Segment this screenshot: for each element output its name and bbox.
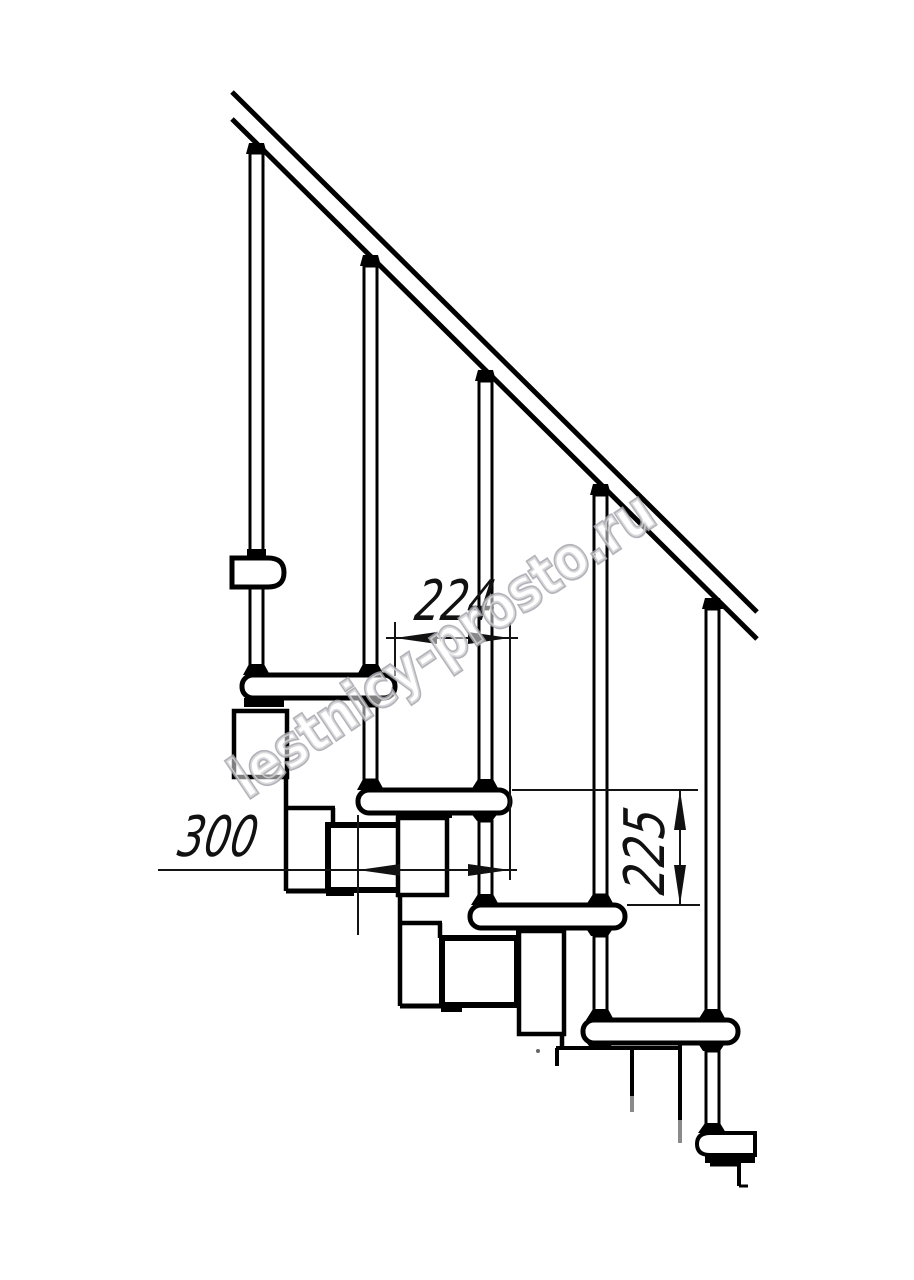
tread-3 bbox=[358, 790, 510, 813]
staircase-drawing-page: 224 300 225 lestnicy-prosto.ru bbox=[0, 0, 914, 1280]
module-box bbox=[398, 818, 447, 895]
module-flange bbox=[326, 887, 354, 896]
foot-bracket bbox=[710, 1165, 739, 1187]
tread-4 bbox=[470, 905, 625, 928]
module-body bbox=[328, 825, 403, 890]
handrail bbox=[232, 92, 757, 639]
module-body bbox=[442, 938, 517, 1005]
tread-5 bbox=[583, 1020, 738, 1043]
module-box bbox=[519, 931, 564, 1034]
tread-6 bbox=[697, 1133, 755, 1155]
dim-value-300: 300 bbox=[174, 805, 263, 870]
baluster-rod-1 bbox=[243, 143, 270, 675]
baluster-rod-5 bbox=[697, 598, 726, 1133]
rail-collar-icon bbox=[360, 255, 381, 266]
dim-value-225: 225 bbox=[613, 803, 678, 898]
rail-collar-icon bbox=[702, 598, 723, 609]
tread-top-collar bbox=[232, 558, 284, 587]
speck bbox=[536, 1049, 540, 1053]
module-flange bbox=[441, 1003, 462, 1012]
staircase-drawing: 224 300 225 lestnicy-prosto.ru bbox=[0, 0, 914, 1280]
rail-collar-icon bbox=[475, 370, 496, 381]
